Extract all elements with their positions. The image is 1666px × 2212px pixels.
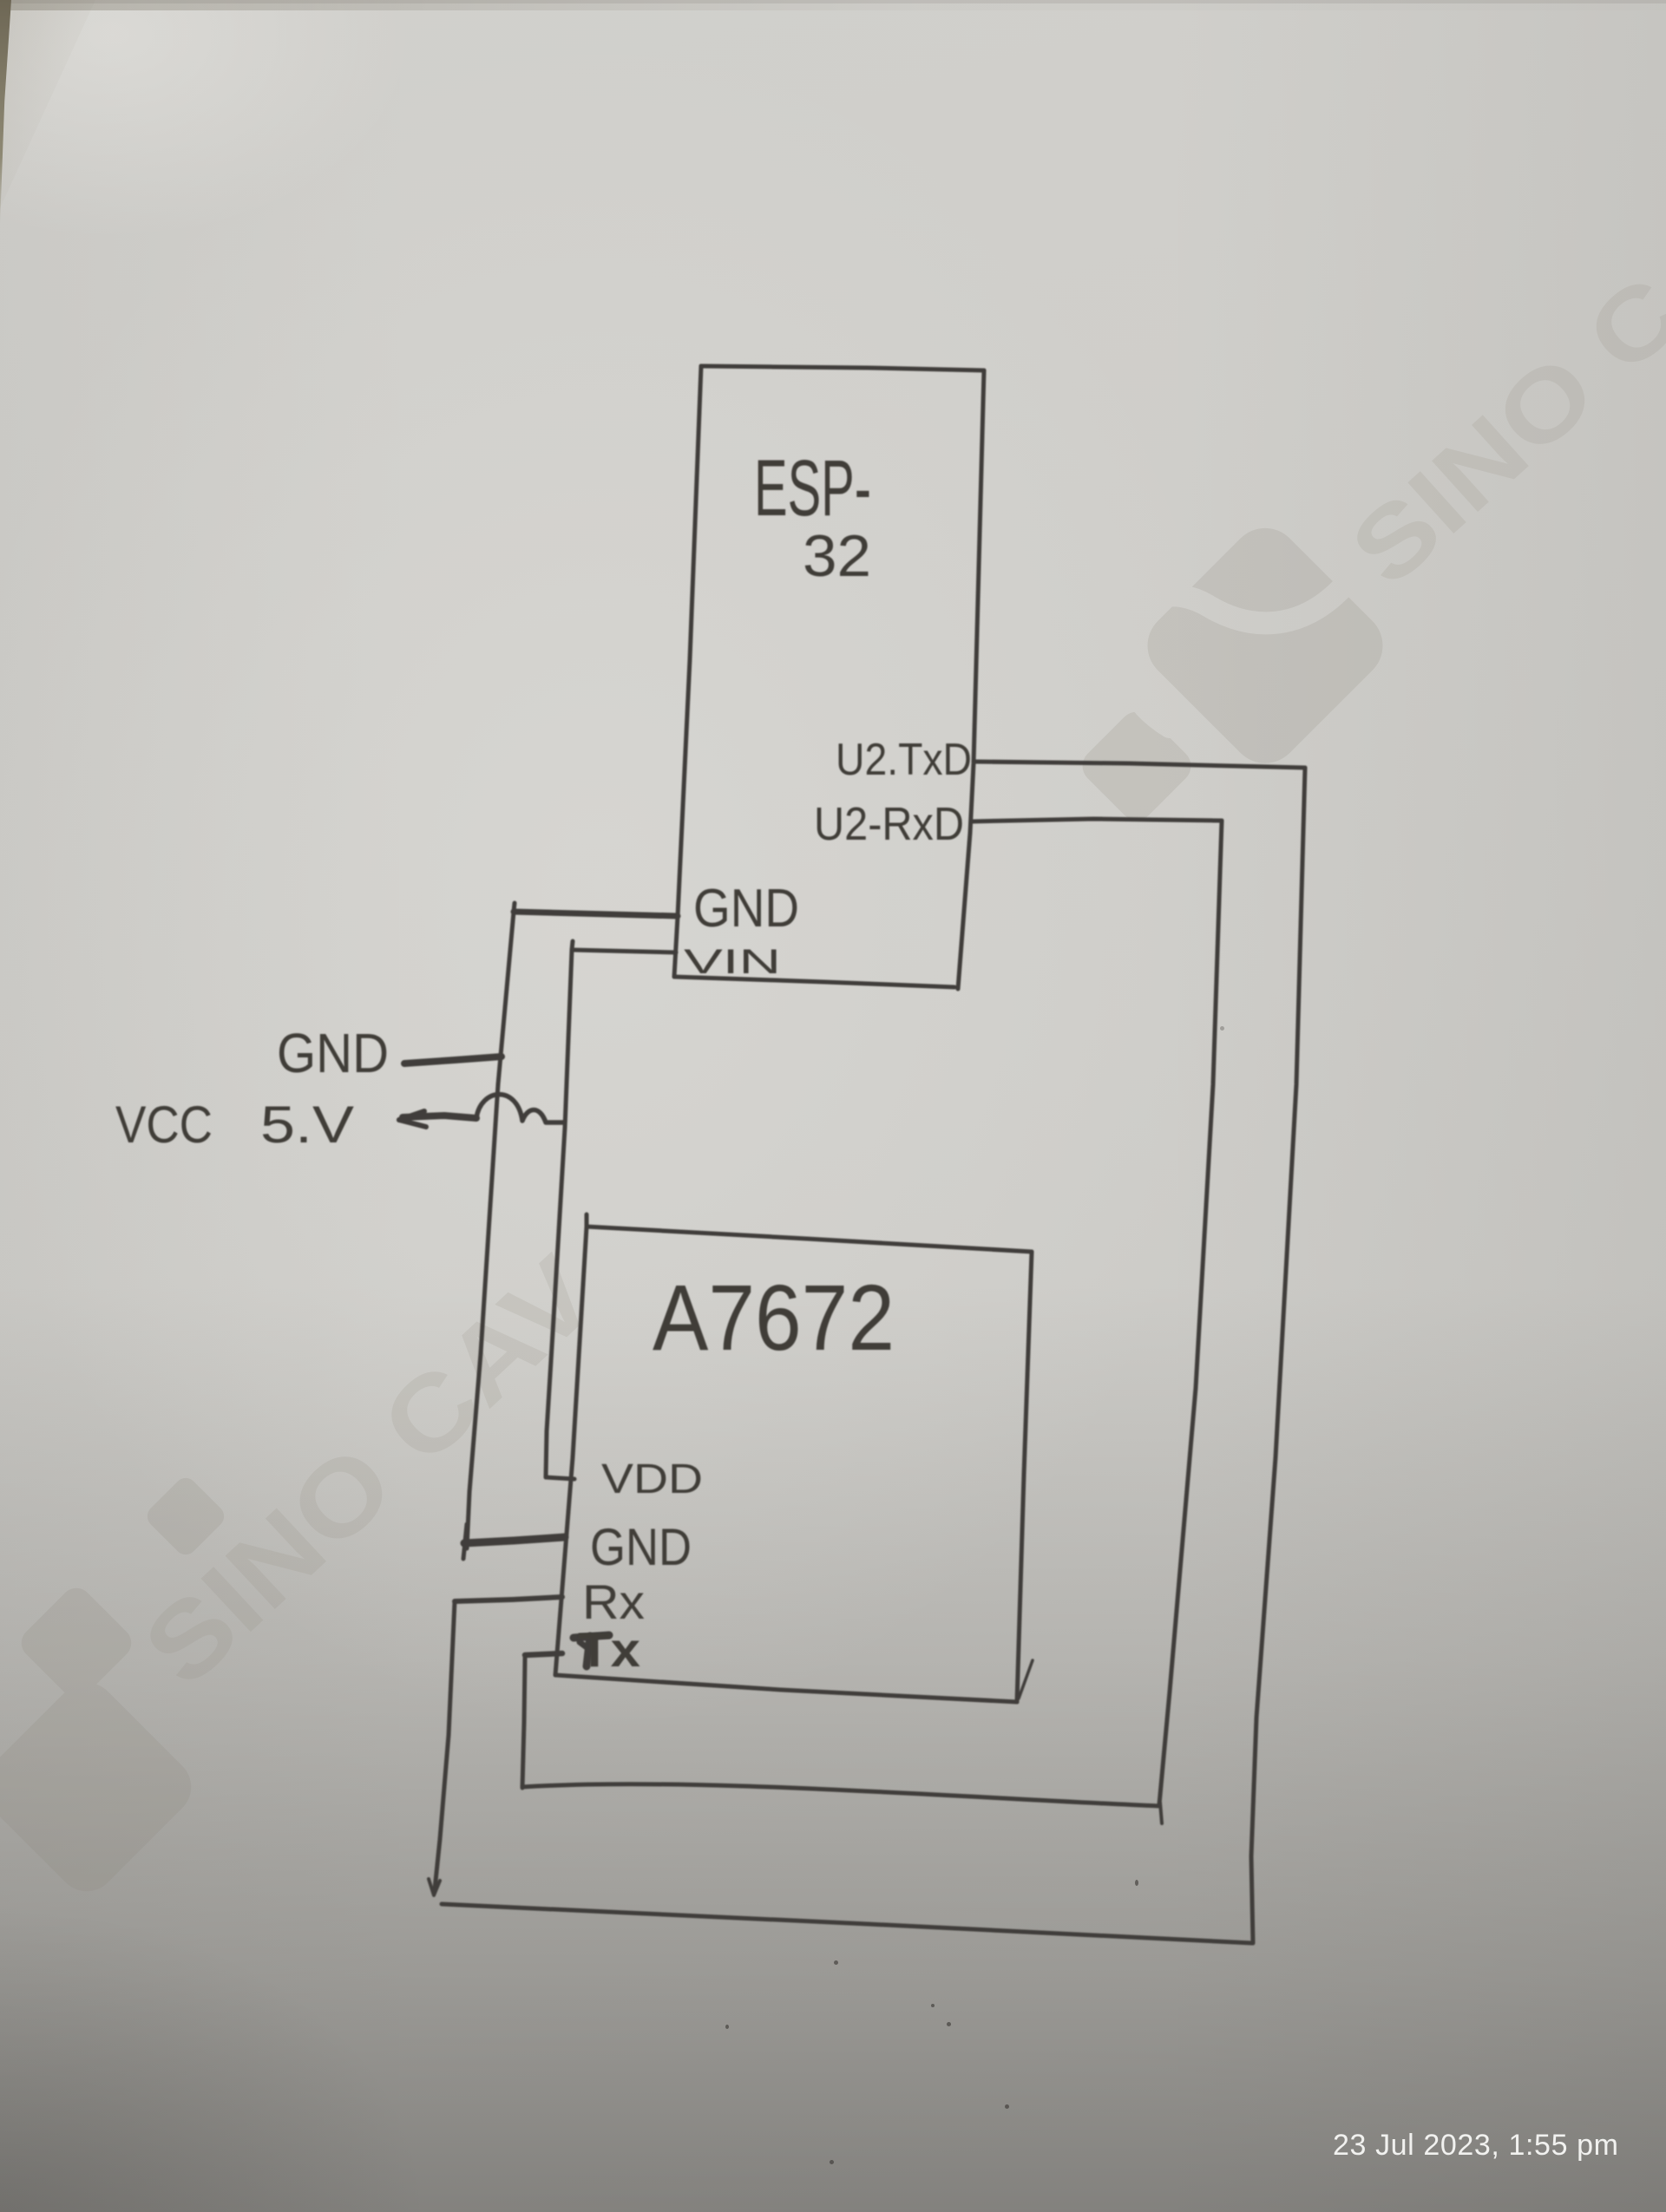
svg-text:U2-RxD: U2-RxD <box>814 798 964 850</box>
svg-text:ESP-: ESP- <box>754 444 871 533</box>
svg-text:GND: GND <box>590 1518 692 1576</box>
svg-text:32: 32 <box>803 523 871 589</box>
svg-text:GND: GND <box>693 879 799 939</box>
svg-text:Tx: Tx <box>578 1622 640 1677</box>
svg-text:VIN: VIN <box>684 943 781 981</box>
svg-text:5.V: 5.V <box>260 1096 354 1154</box>
svg-text:VDD: VDD <box>601 1456 703 1502</box>
svg-text:U2.TxD: U2.TxD <box>836 735 972 785</box>
svg-text:A7672: A7672 <box>653 1265 895 1370</box>
svg-text:VCC: VCC <box>115 1096 213 1154</box>
svg-text:Rx: Rx <box>582 1574 645 1629</box>
svg-text:GND: GND <box>277 1022 389 1084</box>
